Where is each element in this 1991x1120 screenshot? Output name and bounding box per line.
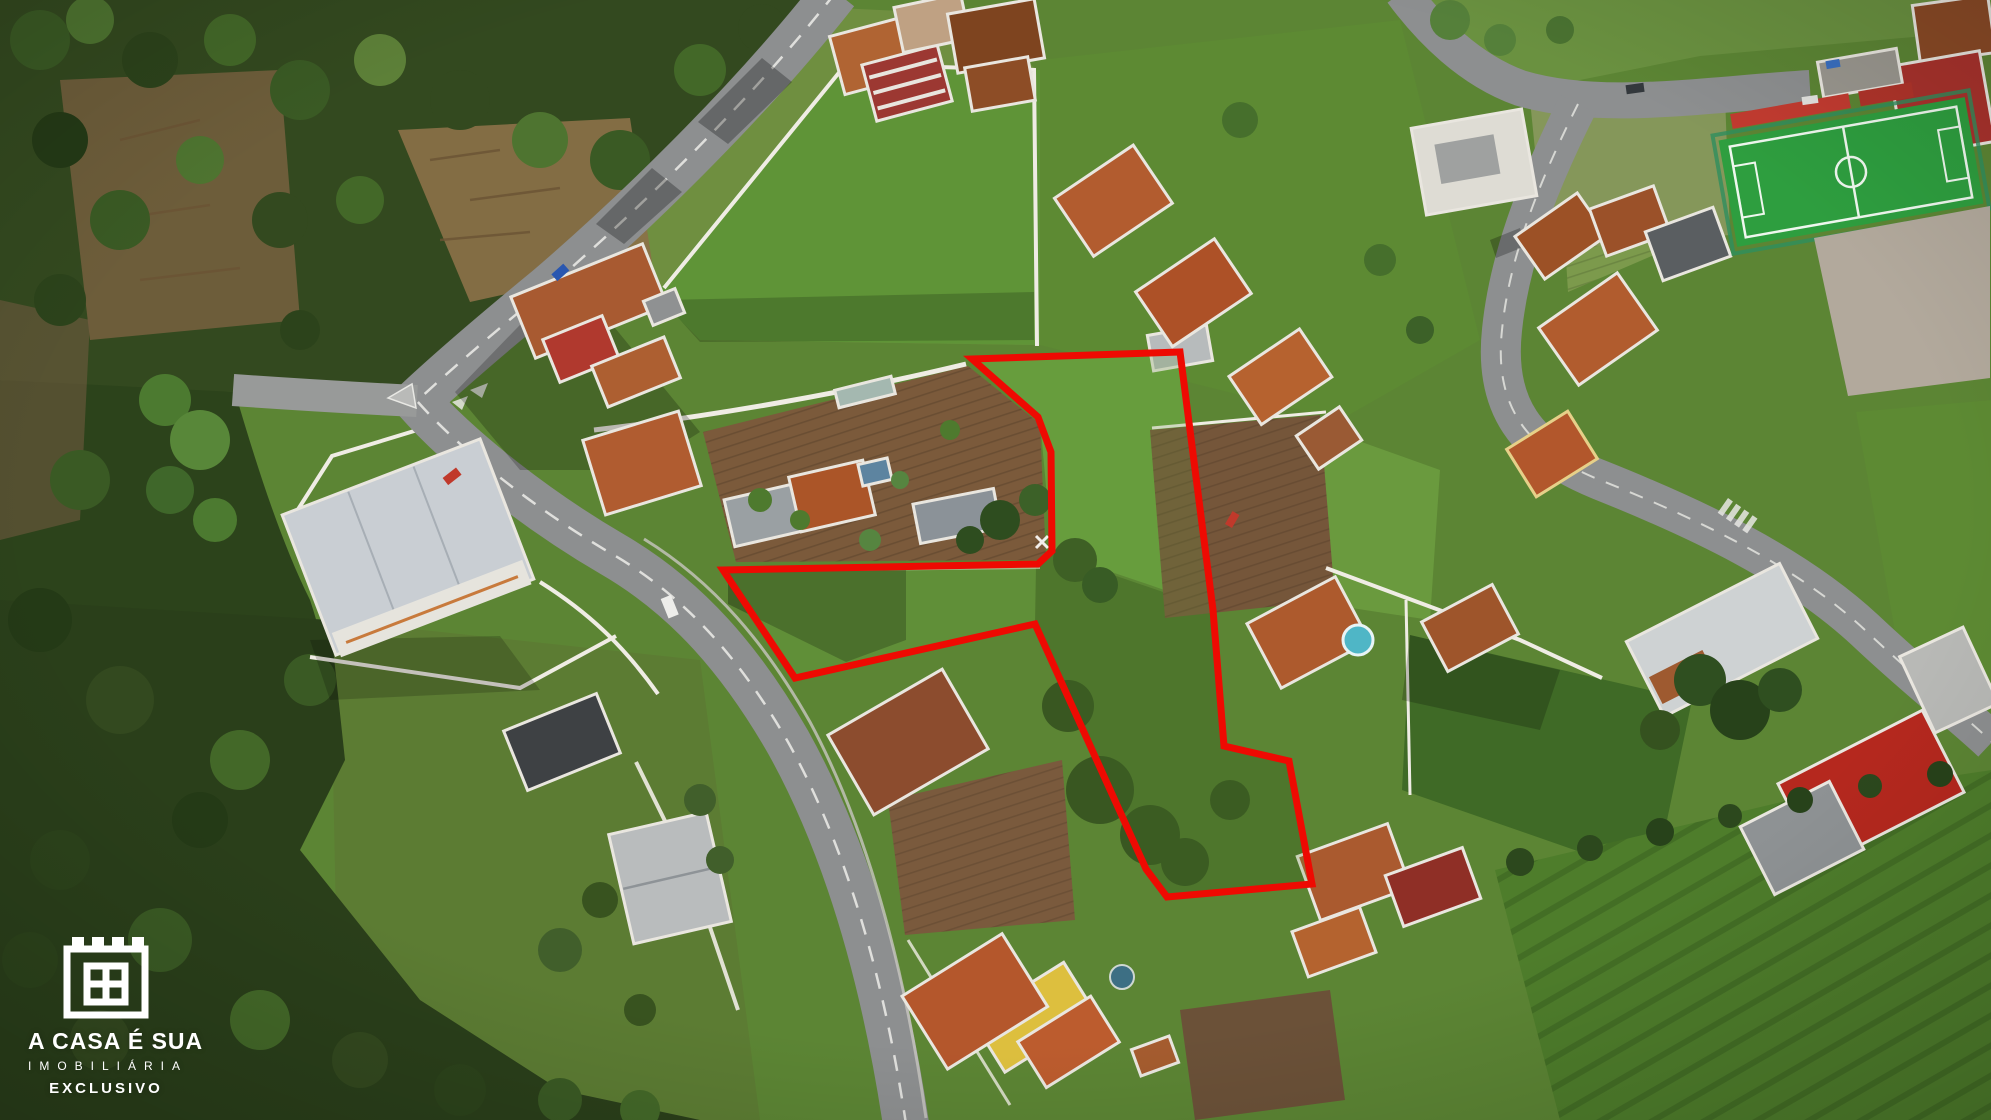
tree [34, 274, 86, 326]
hedge [1718, 804, 1742, 828]
tree [252, 192, 308, 248]
aerial-scene [0, 0, 1991, 1120]
tree [50, 450, 110, 510]
tree [270, 60, 330, 120]
tree [354, 34, 406, 86]
tree [538, 1078, 582, 1120]
tree [336, 176, 384, 224]
aerial-photo: A CASA É SUA IMOBILIÁRIA EXCLUSIVO [0, 0, 1991, 1120]
tree [176, 136, 224, 184]
tree [1406, 316, 1434, 344]
hedge [1646, 818, 1674, 846]
tree [940, 420, 960, 440]
tree [624, 994, 656, 1026]
tree [512, 112, 568, 168]
tree [674, 44, 726, 96]
tree [332, 1032, 388, 1088]
tree [790, 510, 810, 530]
tree [8, 588, 72, 652]
tree [193, 498, 237, 542]
tree [170, 410, 230, 470]
hedge [1506, 848, 1534, 876]
tree [86, 666, 154, 734]
tree [582, 882, 618, 918]
logo-tabs [72, 937, 144, 946]
tree [1640, 710, 1680, 750]
tree [1019, 484, 1051, 516]
exclusive-badge: EXCLUSIVO [28, 1080, 184, 1097]
tree [538, 928, 582, 972]
tree [146, 466, 194, 514]
tree [32, 112, 88, 168]
tree [1758, 668, 1802, 712]
hedge [1577, 835, 1603, 861]
shadow [662, 292, 1034, 342]
tree [1546, 16, 1574, 44]
hedge [1787, 787, 1813, 813]
tree [1484, 24, 1516, 56]
agency-sector: IMOBILIÁRIA [28, 1059, 184, 1073]
tree [434, 1064, 486, 1116]
tree [204, 14, 256, 66]
tree [90, 190, 150, 250]
hedge [1927, 761, 1953, 787]
tree [1222, 102, 1258, 138]
tree [172, 792, 228, 848]
bottom-garden [1180, 990, 1345, 1120]
tree [230, 990, 290, 1050]
tree [980, 500, 1020, 540]
tree [748, 488, 772, 512]
swimming-pool [1110, 965, 1134, 989]
agency-name: A CASA É SUA [28, 1028, 184, 1055]
agency-watermark: A CASA É SUA IMOBILIÁRIA EXCLUSIVO [28, 936, 184, 1097]
tree [859, 529, 881, 551]
tree [280, 310, 320, 350]
tree [1364, 244, 1396, 276]
tree [122, 32, 178, 88]
tree [684, 784, 716, 816]
tree [10, 10, 70, 70]
tree [30, 830, 90, 890]
hedge [1858, 774, 1882, 798]
tree [891, 471, 909, 489]
tree [210, 730, 270, 790]
tree [956, 526, 984, 554]
tree [706, 846, 734, 874]
swimming-pool [1343, 625, 1373, 655]
side-road [233, 390, 417, 401]
tree [430, 70, 490, 130]
window-frame-icon [60, 936, 152, 1022]
tree [1430, 0, 1470, 40]
